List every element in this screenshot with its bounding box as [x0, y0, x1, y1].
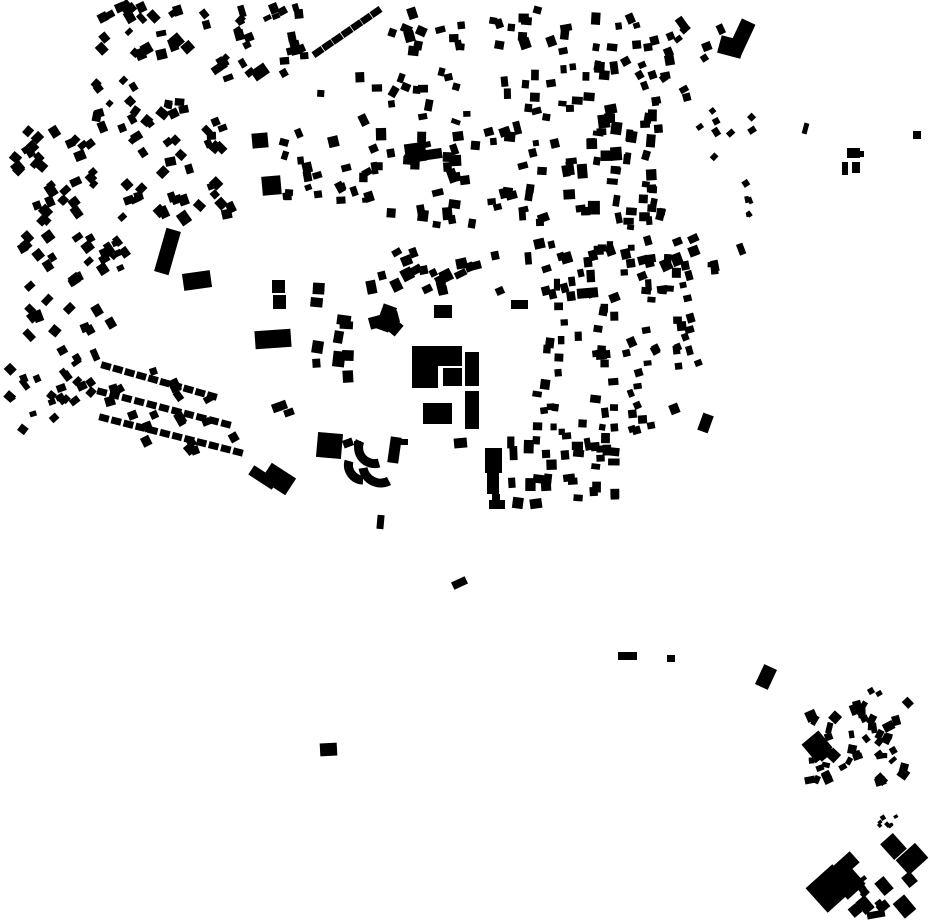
building — [607, 178, 618, 185]
building — [452, 131, 464, 142]
building — [342, 350, 354, 361]
building — [519, 209, 527, 220]
building — [566, 105, 574, 112]
building — [546, 79, 556, 88]
building — [465, 352, 479, 386]
building — [675, 362, 683, 369]
building — [575, 204, 586, 212]
building — [601, 433, 610, 443]
building — [566, 157, 578, 164]
building — [583, 257, 592, 268]
building — [92, 111, 102, 122]
building — [562, 432, 572, 440]
building — [525, 478, 535, 491]
building — [417, 209, 429, 222]
building — [487, 470, 499, 494]
building — [591, 442, 600, 452]
building — [615, 22, 622, 30]
building — [649, 186, 657, 194]
building — [471, 141, 481, 151]
building — [600, 360, 608, 368]
building — [546, 459, 557, 470]
building — [608, 378, 619, 386]
building — [569, 63, 576, 70]
building — [529, 498, 542, 509]
building — [593, 157, 601, 166]
building — [610, 404, 618, 411]
building — [533, 140, 540, 147]
building — [568, 477, 578, 485]
building — [582, 72, 589, 81]
building — [372, 84, 382, 91]
building — [620, 269, 628, 276]
building — [597, 114, 610, 129]
building — [646, 169, 657, 181]
building — [524, 104, 532, 113]
building — [468, 218, 477, 228]
building — [320, 743, 338, 757]
building — [359, 173, 367, 183]
building — [858, 708, 866, 719]
building — [524, 440, 534, 454]
building — [560, 65, 567, 74]
building — [575, 332, 582, 341]
building — [501, 76, 509, 87]
building — [507, 436, 514, 448]
building — [550, 423, 556, 430]
building — [487, 198, 496, 205]
building — [508, 477, 516, 488]
building — [543, 473, 552, 484]
building — [512, 497, 524, 509]
building — [456, 43, 464, 50]
building — [599, 424, 606, 431]
building — [577, 164, 588, 179]
building — [554, 369, 562, 377]
building — [376, 515, 384, 530]
building — [423, 403, 452, 424]
building — [554, 353, 563, 361]
building — [560, 450, 569, 460]
building — [317, 90, 325, 97]
building — [608, 458, 620, 465]
building — [511, 300, 528, 309]
building — [524, 252, 532, 265]
building — [465, 391, 479, 429]
building — [607, 241, 614, 250]
building — [563, 189, 575, 199]
building — [573, 494, 583, 501]
building — [408, 148, 421, 160]
building — [680, 260, 690, 270]
building — [443, 368, 462, 386]
building — [442, 207, 453, 221]
building — [590, 394, 601, 403]
building — [457, 21, 465, 29]
building — [618, 652, 637, 660]
building — [489, 500, 505, 509]
building — [558, 336, 565, 344]
building — [316, 432, 343, 459]
building — [628, 409, 637, 418]
building — [388, 100, 395, 108]
building — [600, 304, 608, 313]
building — [639, 212, 650, 221]
building — [386, 208, 396, 218]
building — [532, 436, 540, 445]
building — [609, 61, 618, 75]
building-footprint-map — [0, 0, 930, 924]
building — [273, 295, 286, 309]
building — [312, 282, 324, 294]
building — [643, 360, 651, 366]
building — [558, 100, 567, 106]
building — [540, 379, 551, 390]
building — [537, 167, 547, 175]
building — [485, 448, 502, 473]
building — [507, 23, 515, 31]
building — [710, 263, 718, 274]
building — [646, 254, 656, 263]
building — [596, 128, 606, 135]
building — [623, 218, 634, 225]
building — [596, 455, 605, 462]
building — [443, 162, 452, 172]
building — [598, 244, 606, 251]
building — [654, 124, 663, 133]
building — [463, 111, 470, 117]
building — [842, 162, 848, 175]
building — [591, 463, 600, 470]
building — [626, 207, 637, 215]
building — [586, 270, 595, 283]
building — [607, 43, 618, 51]
building — [432, 221, 441, 229]
building — [868, 720, 875, 730]
building — [602, 350, 610, 359]
building — [376, 128, 387, 141]
building — [643, 43, 653, 52]
building — [413, 40, 423, 51]
building — [175, 98, 185, 106]
building — [554, 279, 560, 291]
building — [664, 54, 675, 66]
building — [638, 415, 648, 424]
building — [459, 175, 470, 185]
building — [542, 450, 550, 459]
building — [502, 187, 513, 197]
building — [857, 151, 864, 157]
building — [540, 407, 548, 414]
building — [336, 196, 345, 204]
building — [300, 52, 309, 60]
building — [592, 43, 600, 51]
building — [311, 340, 324, 354]
building — [355, 72, 364, 82]
building — [852, 162, 860, 173]
building — [312, 358, 321, 367]
building — [261, 175, 282, 196]
building — [667, 655, 675, 662]
building — [272, 280, 285, 293]
building — [641, 287, 651, 295]
building — [626, 258, 636, 268]
building — [572, 442, 583, 450]
building — [490, 138, 497, 146]
building — [522, 80, 530, 89]
building — [583, 92, 595, 101]
building — [294, 9, 304, 19]
building — [547, 403, 555, 410]
building — [164, 99, 173, 108]
building — [647, 421, 656, 429]
building — [633, 383, 642, 390]
building — [526, 184, 535, 194]
building — [342, 370, 353, 383]
building — [490, 251, 499, 261]
building — [573, 449, 585, 457]
building — [601, 407, 609, 418]
building — [443, 152, 453, 162]
building — [412, 346, 438, 388]
building — [623, 154, 631, 165]
building — [560, 319, 568, 326]
building — [646, 134, 656, 148]
building — [279, 57, 289, 65]
building — [647, 204, 656, 212]
building — [448, 199, 461, 209]
building — [566, 291, 576, 301]
building — [542, 113, 551, 121]
building — [533, 422, 543, 430]
building — [310, 297, 323, 308]
building — [913, 131, 921, 139]
building — [254, 329, 291, 349]
building — [386, 148, 395, 158]
building — [572, 96, 583, 104]
building — [339, 321, 353, 329]
building — [455, 258, 466, 270]
building — [530, 93, 540, 102]
building — [588, 201, 600, 215]
building — [586, 138, 597, 149]
building — [659, 287, 667, 295]
building — [746, 212, 752, 217]
building — [593, 325, 603, 333]
building — [610, 166, 620, 174]
building — [651, 97, 659, 107]
building — [592, 350, 602, 358]
building — [672, 268, 681, 278]
building — [591, 12, 601, 25]
building — [610, 312, 618, 321]
building — [284, 193, 291, 200]
building — [625, 129, 633, 142]
building — [627, 224, 635, 230]
building — [676, 321, 686, 331]
building — [578, 419, 587, 427]
building — [610, 423, 618, 431]
building — [518, 14, 528, 23]
building — [554, 302, 563, 310]
building — [489, 17, 498, 25]
building — [434, 305, 452, 318]
building — [251, 132, 268, 148]
building — [454, 437, 468, 448]
building — [603, 445, 612, 456]
building — [504, 88, 511, 99]
building — [398, 439, 408, 445]
building — [536, 219, 544, 227]
building — [494, 40, 505, 50]
building — [589, 487, 598, 496]
building — [610, 489, 619, 498]
map-canvas — [0, 0, 930, 924]
building — [417, 132, 426, 143]
building — [314, 190, 323, 198]
building — [545, 337, 555, 348]
building — [297, 156, 304, 164]
building — [647, 297, 656, 303]
building — [531, 70, 539, 81]
building — [632, 40, 642, 49]
building — [413, 86, 421, 94]
building — [568, 276, 576, 286]
building — [610, 147, 622, 161]
building — [610, 121, 622, 135]
building — [437, 346, 462, 366]
building — [639, 194, 648, 203]
